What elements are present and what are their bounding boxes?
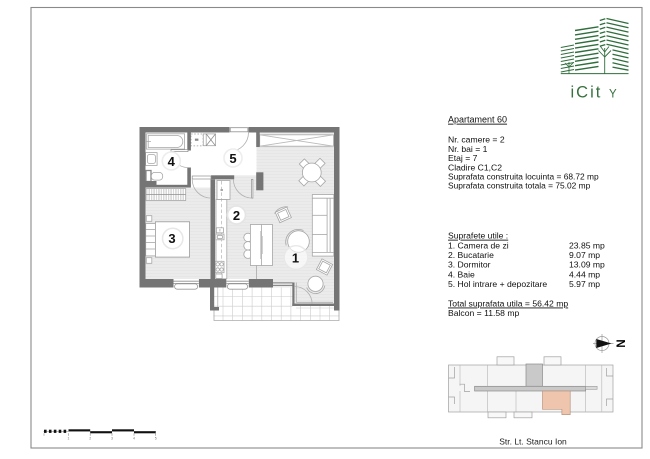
- svg-text:Y: Y: [609, 89, 617, 101]
- svg-text:5: 5: [229, 151, 236, 166]
- svg-text:Suprafete utile :: Suprafete utile :: [448, 231, 508, 241]
- svg-text:4: 4: [168, 154, 176, 169]
- svg-text:2: 2: [233, 208, 240, 223]
- svg-text:5: 5: [155, 437, 157, 441]
- svg-text:3: 3: [111, 437, 113, 441]
- svg-text:1. Camera de zi: 1. Camera de zi: [448, 240, 509, 250]
- svg-text:4.44 mp: 4.44 mp: [569, 269, 600, 279]
- svg-text:4. Baie: 4. Baie: [448, 269, 475, 279]
- svg-text:Str. Lt. Stancu Ion: Str. Lt. Stancu Ion: [499, 437, 567, 447]
- svg-text:2. Bucatarie: 2. Bucatarie: [448, 250, 494, 260]
- svg-text:1: 1: [292, 250, 299, 265]
- svg-text:3. Dormitor: 3. Dormitor: [448, 260, 491, 270]
- svg-text:2: 2: [89, 437, 91, 441]
- svg-text:Balcon = 11.58 mp: Balcon = 11.58 mp: [448, 308, 519, 318]
- svg-text:Apartament 60: Apartament 60: [448, 115, 507, 125]
- svg-text:Total suprafata utila = 56.42: Total suprafata utila = 56.42 mp: [448, 299, 568, 309]
- svg-text:23.85 mp: 23.85 mp: [569, 240, 605, 250]
- svg-text:iCit: iCit: [571, 84, 603, 102]
- svg-text:5.97 mp: 5.97 mp: [569, 279, 600, 289]
- svg-text:9.07 mp: 9.07 mp: [569, 250, 600, 260]
- svg-text:Suprafata construita totala =: Suprafata construita totala = 75.02 mp: [448, 181, 591, 191]
- svg-text:13.09 mp: 13.09 mp: [569, 260, 605, 270]
- svg-text:3: 3: [168, 231, 175, 246]
- svg-text:4: 4: [133, 437, 135, 441]
- svg-text:5. Hol intrare + depozitare: 5. Hol intrare + depozitare: [448, 279, 547, 289]
- svg-text:1: 1: [68, 437, 70, 441]
- svg-text:N: N: [614, 339, 626, 347]
